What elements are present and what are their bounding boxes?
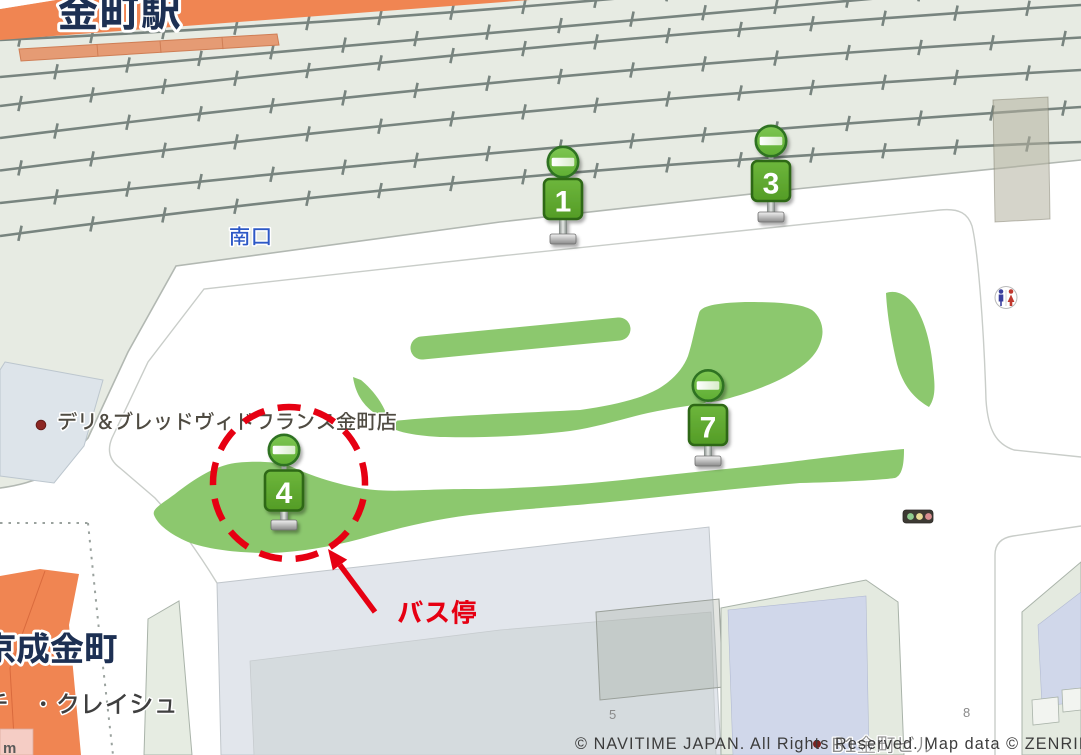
svg-text:8: 8 <box>963 705 970 720</box>
svg-text:3: 3 <box>763 168 780 201</box>
svg-text:4: 4 <box>276 477 293 510</box>
svg-text:© NAVITIME JAPAN. All Rights R: © NAVITIME JAPAN. All Rights Reserved. M… <box>575 735 1081 753</box>
svg-text:m: m <box>3 740 16 755</box>
svg-text:1: 1 <box>555 186 572 219</box>
svg-text:7: 7 <box>700 412 717 445</box>
svg-text:5: 5 <box>609 707 616 722</box>
